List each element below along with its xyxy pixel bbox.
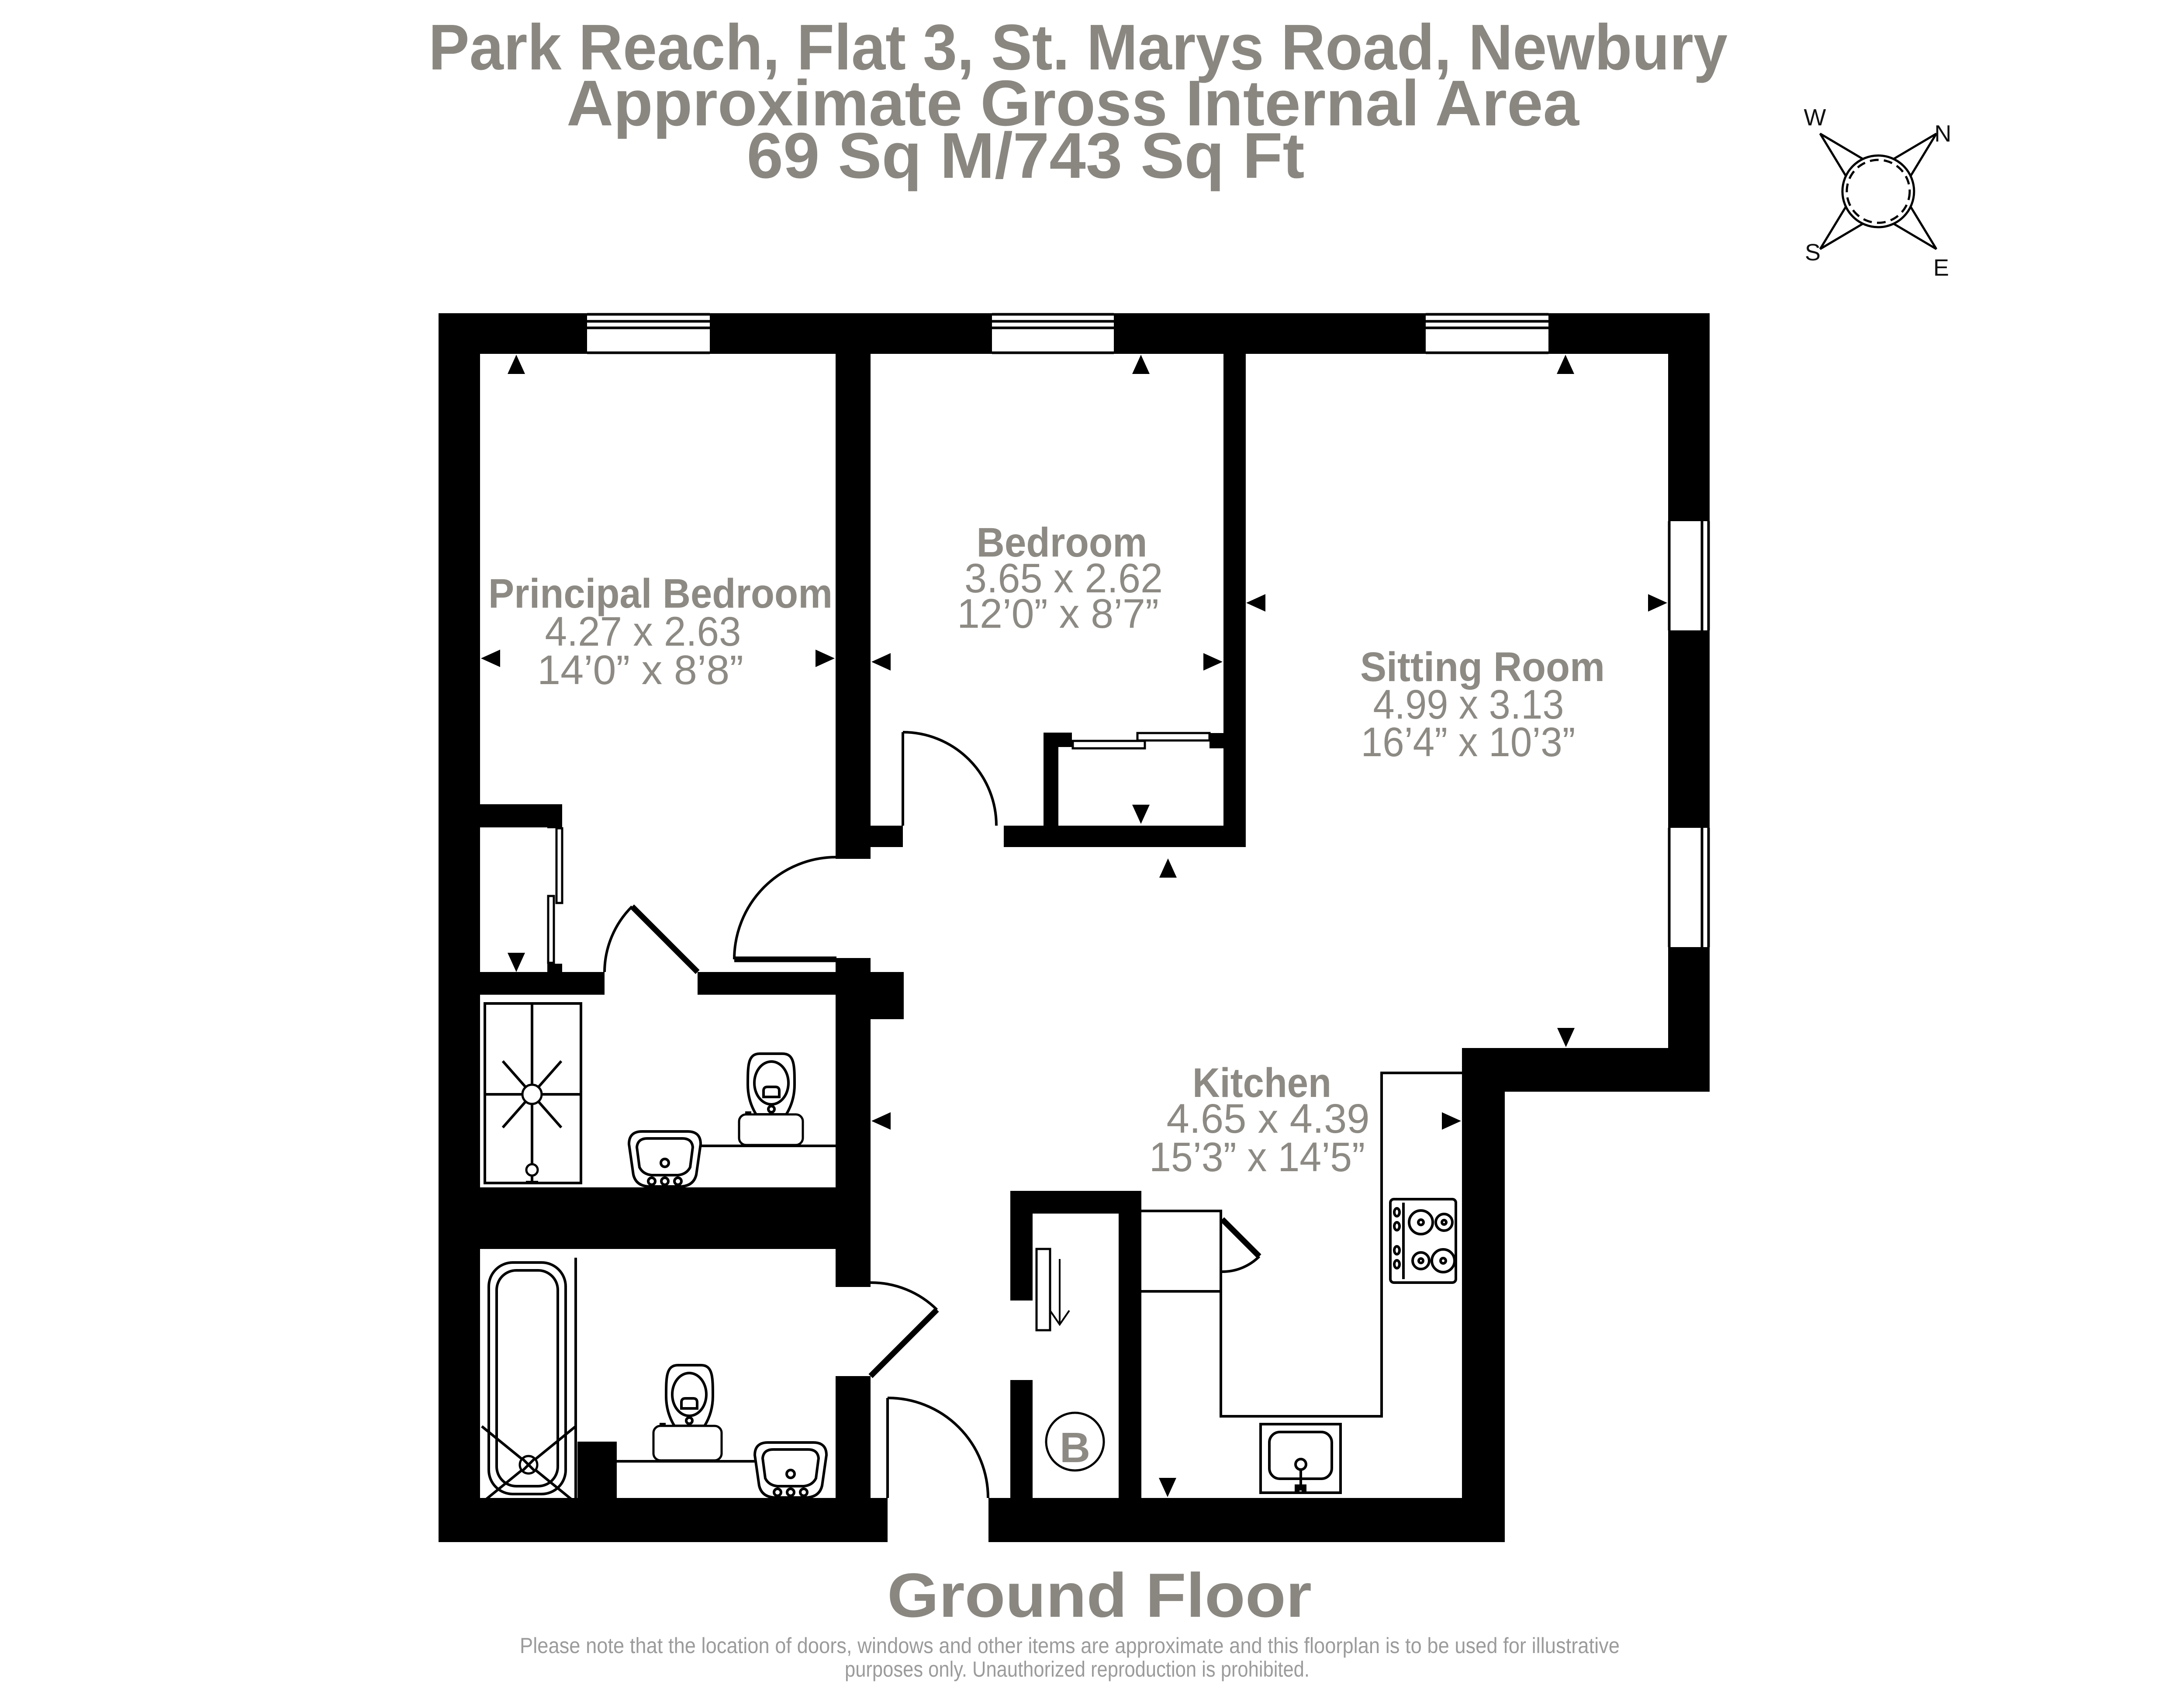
svg-text:Ground Floor: Ground Floor xyxy=(887,1561,1312,1630)
svg-text:12’0” x 8’7”: 12’0” x 8’7” xyxy=(957,591,1159,637)
svg-text:W: W xyxy=(1804,104,1826,131)
svg-text:15’3” x 14’5”: 15’3” x 14’5” xyxy=(1149,1134,1365,1180)
svg-text:E: E xyxy=(1933,255,1949,281)
svg-text:14’0” x 8’8”: 14’0” x 8’8” xyxy=(537,647,743,693)
svg-text:purposes only. Unauthorized re: purposes only. Unauthorized reproduction… xyxy=(845,1657,1310,1681)
svg-text:16’4” x 10’3”: 16’4” x 10’3” xyxy=(1361,719,1576,765)
svg-text:S: S xyxy=(1805,239,1821,266)
svg-text:B: B xyxy=(1060,1424,1090,1471)
svg-text:69 Sq M/743 Sq Ft: 69 Sq M/743 Sq Ft xyxy=(747,120,1305,192)
svg-text:N: N xyxy=(1935,121,1952,147)
svg-text:Please note that the location: Please note that the location of doors, … xyxy=(520,1633,1620,1658)
